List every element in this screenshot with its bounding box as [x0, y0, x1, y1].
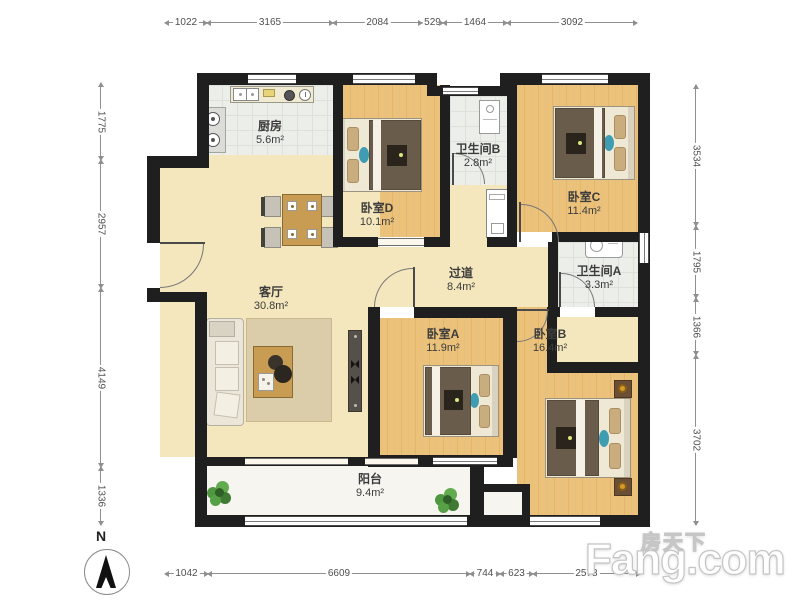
dim-top-1: 1022 [165, 22, 207, 23]
dim-left-1: 1775 [100, 83, 101, 160]
kitchen-open-edge-floor [207, 155, 333, 169]
balcony-sliding-door [365, 458, 418, 465]
balcony-label: 阳台9.4m² [356, 472, 384, 501]
sofa [206, 318, 244, 426]
wall-segment [195, 300, 207, 465]
compass-north-label: N [96, 528, 106, 544]
kettle-icon [299, 89, 311, 101]
bathroom-b-label: 卫生间B2.8m² [456, 142, 501, 171]
dim-top-3: 2084 [333, 22, 422, 23]
wall-segment [547, 362, 638, 373]
dim-left-4: 1336 [100, 467, 101, 525]
cutting-board-icon [263, 89, 275, 97]
window [433, 457, 497, 465]
dim-right-1: 3534 [695, 85, 696, 226]
wall-segment [507, 85, 517, 247]
dim-right-4: 3702 [695, 355, 696, 525]
bedroom-a-label: 卧室A11.9m² [426, 327, 459, 356]
dim-left-3: 4149 [100, 288, 101, 467]
wall-segment [503, 307, 517, 458]
wall-segment [197, 73, 209, 168]
bathroom-a-door [559, 272, 561, 307]
floor-plan-page: 厨房5.6m² 卧室D10.1m² 卫生间B2.8m² 卧室C11.4m² 客厅… [0, 0, 800, 600]
bathroom-b-door [452, 153, 454, 185]
wall-segment [333, 85, 343, 247]
nightstand [614, 478, 632, 496]
dining-chair [264, 227, 281, 248]
wall-segment [552, 232, 638, 242]
nightstand [614, 380, 632, 398]
dining-table [282, 194, 322, 246]
dim-top-4: 529 [422, 22, 443, 23]
wall-segment [368, 307, 380, 458]
bedroom-c-bed [553, 106, 635, 180]
window [443, 87, 478, 95]
bedroom-b-label: 卧室B16.4m² [533, 327, 567, 356]
potted-plant-icon [434, 487, 461, 514]
dim-right-3: 1366 [695, 298, 696, 355]
window [639, 233, 649, 263]
coffee-table [253, 346, 293, 398]
dim-right-2: 1795 [695, 226, 696, 298]
wall-segment [333, 237, 378, 247]
wall-segment [440, 85, 450, 247]
wall-segment [147, 156, 160, 243]
wall-segment [595, 307, 638, 317]
bedroom-c-label: 卧室C11.4m² [567, 190, 600, 219]
sink-icon [233, 88, 259, 101]
potted-plant-icon [206, 479, 233, 508]
entry-door [160, 242, 205, 244]
washing-machine-icon [486, 189, 508, 238]
window [248, 74, 296, 84]
dim-bottom-4: 623 [500, 573, 533, 574]
dim-bottom-3: 744 [470, 573, 500, 574]
watermark-logo: Fang.com [585, 535, 785, 585]
bedroom-a-door [413, 267, 415, 307]
bedroom-a-bed [423, 365, 499, 437]
wall-segment [414, 307, 513, 318]
window [542, 74, 608, 84]
bedroom-d-label: 卧室D10.1m² [360, 201, 394, 230]
bathroom-a-label: 卫生间A3.3m² [577, 264, 622, 293]
balcony-sliding-door [245, 458, 348, 465]
bedroom-d-door-opening [378, 238, 424, 246]
shower-unit-icon [479, 100, 500, 134]
window [530, 516, 600, 526]
compass-north-icon [84, 549, 130, 595]
dim-bottom-1: 1042 [165, 573, 208, 574]
wall-segment [522, 484, 530, 517]
ac-platform-floor [484, 492, 522, 515]
wall-segment [470, 457, 484, 517]
pot-icon [284, 90, 295, 101]
dim-top-2: 3165 [207, 22, 333, 23]
wall-segment [548, 242, 558, 317]
wall-segment [638, 73, 650, 525]
dim-top-5: 1464 [443, 22, 507, 23]
dim-top-6: 3092 [507, 22, 637, 23]
bedroom-c-door [519, 202, 521, 242]
balcony-floor [207, 460, 470, 515]
balcony-window [245, 516, 467, 526]
dining-chair [264, 196, 281, 217]
kitchen-label: 厨房5.6m² [256, 119, 284, 148]
bedroom-b-bed [545, 398, 631, 478]
dim-bottom-2: 6609 [208, 573, 470, 574]
window [353, 74, 415, 84]
dim-left-2: 2957 [100, 160, 101, 288]
bedroom-b-door [517, 309, 549, 311]
bedroom-d-bed [338, 118, 422, 192]
living-room-label: 客厅30.8m² [254, 285, 288, 314]
hallway-arm-floor [557, 317, 638, 362]
hallway-label: 过道8.4m² [447, 266, 475, 295]
tv-stand [348, 330, 362, 412]
